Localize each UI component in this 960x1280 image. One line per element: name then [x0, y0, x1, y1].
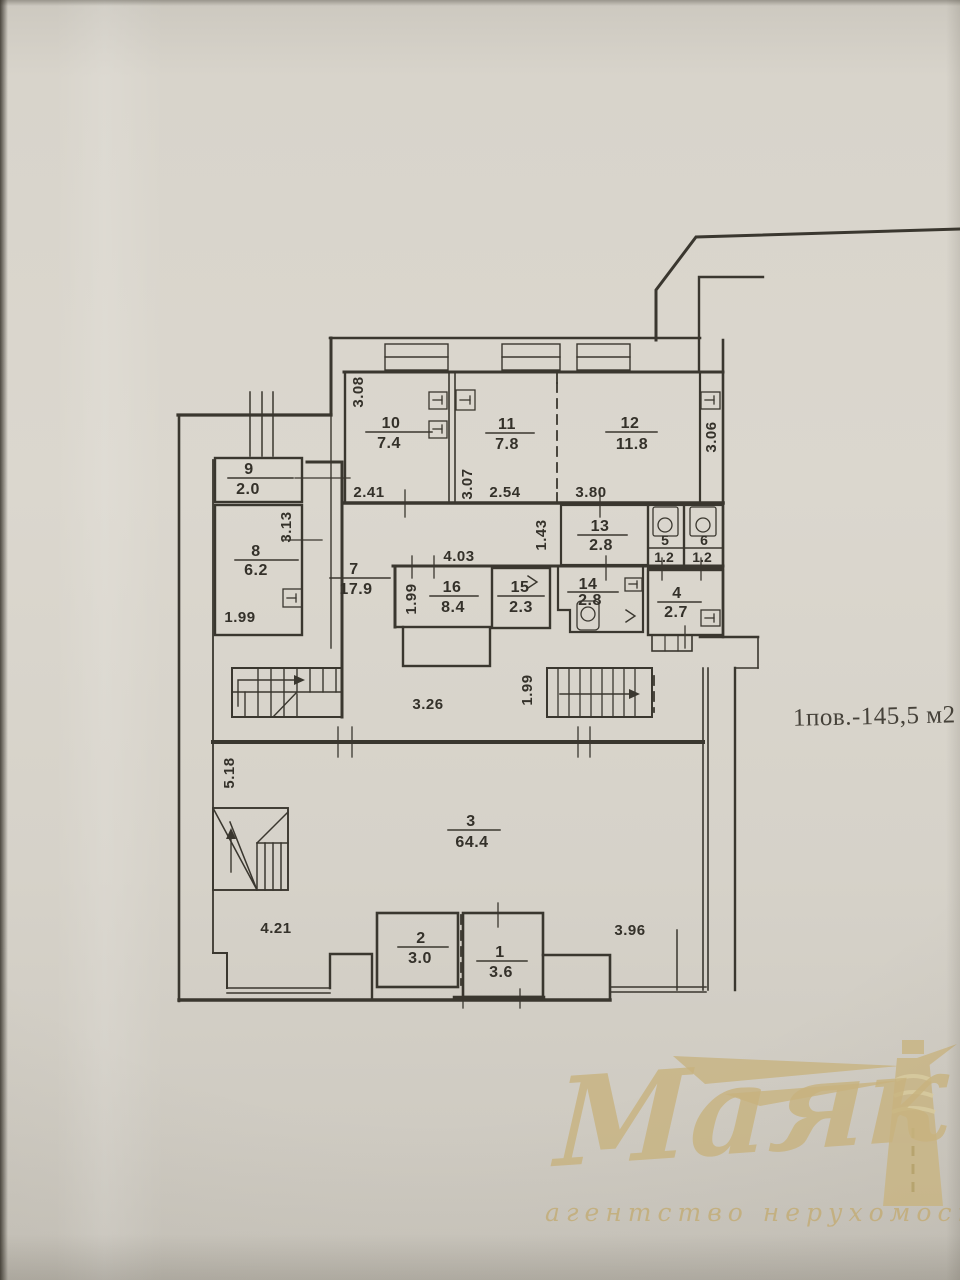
room-area-8: 6.2: [244, 562, 268, 579]
duct-walls: [677, 637, 758, 990]
upper-room-walls: [345, 372, 723, 503]
room-label-10: 10: [382, 415, 401, 432]
dim-stair-passage: 1.99: [519, 674, 536, 705]
room-label-8: 8: [251, 543, 260, 560]
room-area-11: 7.8: [495, 436, 519, 453]
photo-edge-shadow-top: [0, 0, 960, 6]
room-label-3: 3: [466, 813, 475, 830]
photo-edge-shadow-right: [946, 0, 960, 1280]
watermark: Маяк агентство нерухомості: [440, 1020, 960, 1260]
dim-room11-bottom: 2.54: [489, 484, 520, 501]
dim-room3-bottom-left: 4.21: [260, 920, 291, 937]
dim-room3-bottom-right: 3.96: [614, 922, 645, 939]
dimension-labels: 3.08 2.41 3.07 2.54 3.80 3.06 1.43 3.13 …: [221, 376, 720, 939]
photo-edge-shadow-left: [0, 0, 8, 1280]
radiator-icon: [429, 421, 447, 438]
bottom-left-detail: [213, 953, 372, 1000]
dim-room8-right: 3.13: [278, 511, 295, 542]
room-label-4: 4: [672, 585, 681, 602]
room-area-6: 1.2: [692, 549, 712, 565]
photo-edge-shadow-bottom: [0, 1234, 960, 1280]
room-label-13: 13: [591, 518, 610, 535]
radiator-icon: [429, 392, 447, 409]
radiator-icon: [625, 578, 642, 591]
room-area-12: 11.8: [616, 436, 648, 453]
room-area-3: 64.4: [455, 834, 488, 851]
window-band: [385, 344, 630, 370]
radiator-icon: [701, 610, 720, 626]
room-label-7: 7: [349, 561, 358, 578]
dim-room12-bottom: 3.80: [575, 484, 606, 501]
room-label-14: 14: [579, 576, 598, 593]
door-swing-icon: [626, 610, 635, 622]
room-label-11: 11: [498, 416, 516, 433]
stair-upper: [232, 668, 342, 717]
scanned-floor-plan-photo: 10 7.4 11 7.8 12 11.8 9 2.0 8 6.2 7 17.9…: [0, 0, 960, 1280]
room-area-4: 2.7: [664, 604, 688, 621]
room-area-10: 7.4: [377, 435, 401, 452]
room-label-2: 2: [416, 930, 425, 947]
room-label-12: 12: [621, 415, 640, 432]
room-area-13: 2.8: [589, 537, 613, 554]
dim-room12-right: 3.06: [703, 421, 720, 452]
watermark-brand: Маяк: [553, 1034, 950, 1184]
room-area-14: 2.8: [578, 592, 602, 609]
dim-room3-left: 5.18: [221, 757, 238, 788]
room-label-9: 9: [244, 461, 253, 478]
room-area-2: 3.0: [408, 950, 432, 967]
radiator-icon: [283, 589, 302, 607]
watermark-tagline: агентство нерухомості: [545, 1198, 955, 1227]
dim-lobby: 3.26: [412, 696, 443, 713]
stair-right: [547, 668, 652, 717]
radiator-icon: [701, 392, 720, 409]
room-area-15: 2.3: [509, 599, 533, 616]
dim-room8-bottom: 1.99: [224, 609, 255, 626]
dim-room16-left: 1.99: [403, 583, 420, 614]
room-area-1: 3.6: [489, 964, 513, 981]
dim-room10-left: 3.08: [350, 376, 367, 407]
room-label-15: 15: [511, 579, 530, 596]
room-area-5: 1.2: [654, 549, 674, 565]
dim-room13-left: 1.43: [533, 519, 550, 550]
stair-winder: [213, 808, 288, 890]
room-label-16: 16: [443, 579, 462, 596]
room-area-9: 2.0: [236, 481, 260, 498]
room-area-7: 17.9: [339, 581, 372, 598]
dim-room11-left: 3.07: [459, 468, 476, 499]
room-area-16: 8.4: [441, 599, 465, 616]
room-label-5: 5: [661, 532, 669, 548]
dim-room16-top: 4.03: [443, 548, 474, 565]
dim-room10-bottom: 2.41: [353, 484, 384, 501]
floor-summary-note: 1пов.-145,5 м2: [793, 701, 960, 733]
room-label-1: 1: [495, 944, 504, 961]
corridor-walls: [307, 415, 342, 717]
room-label-6: 6: [700, 532, 708, 548]
radiator-icon: [456, 390, 475, 410]
